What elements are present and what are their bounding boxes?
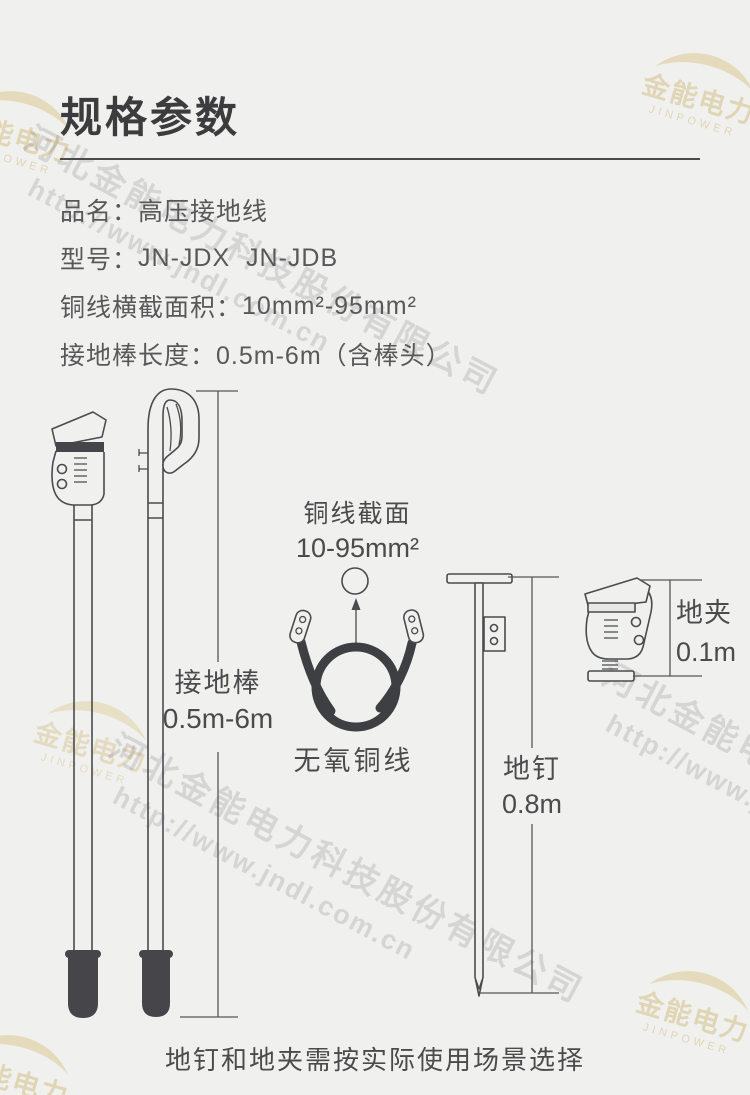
wire-lug-right: [402, 609, 425, 645]
nail-dimension-label: 地钉 0.8m: [480, 752, 584, 822]
nail-length-text: 0.8m: [480, 787, 584, 822]
clamp-length-text: 0.1m: [676, 635, 750, 670]
rod-dimension-label: 接地棒 0.5m-6m: [156, 666, 280, 737]
copper-wire-drawing: [288, 568, 425, 727]
rod-clamp-drawing: [52, 412, 106, 1018]
arrow-up-icon: [352, 598, 361, 648]
ground-clamp-drawing: [585, 578, 652, 681]
wire-section-range: 10-95mm²: [285, 531, 430, 566]
wire-section-title: 铜线截面: [285, 498, 430, 531]
nail-label-text: 地钉: [480, 752, 584, 787]
clamp-label-text: 地夹: [676, 596, 750, 631]
wire-section-label: 铜线截面 10-95mm²: [285, 498, 430, 566]
wire-name-label: 无氧铜线: [281, 744, 426, 779]
rod-range-text: 0.5m-6m: [156, 701, 280, 737]
rod-label-text: 接地棒: [156, 666, 280, 701]
wire-lug-left: [288, 609, 312, 645]
clamp-dimension-label: 地夹 0.1m: [676, 596, 750, 670]
product-spec-page: 金能电力 JINPOWER 金能电力 JINPOWER 金能电力 JINPOWE…: [0, 0, 750, 1095]
wire-cross-section-dot: [342, 568, 368, 594]
footer-note: 地钉和地夹需按实际使用场景选择: [0, 1040, 750, 1077]
